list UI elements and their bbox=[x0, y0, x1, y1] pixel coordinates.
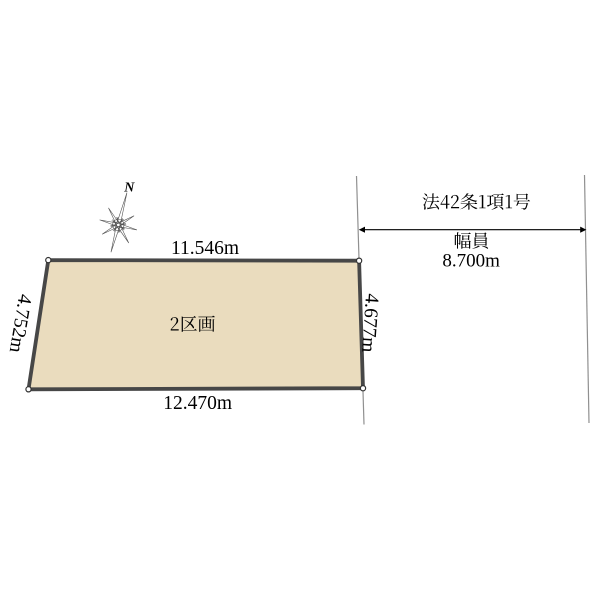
svg-text:12.470m: 12.470m bbox=[163, 393, 232, 414]
svg-text:4.677m: 4.677m bbox=[357, 293, 382, 353]
svg-text:11.546m: 11.546m bbox=[171, 238, 239, 259]
svg-text:8.700m: 8.700m bbox=[442, 250, 500, 271]
svg-text:N: N bbox=[123, 181, 135, 196]
